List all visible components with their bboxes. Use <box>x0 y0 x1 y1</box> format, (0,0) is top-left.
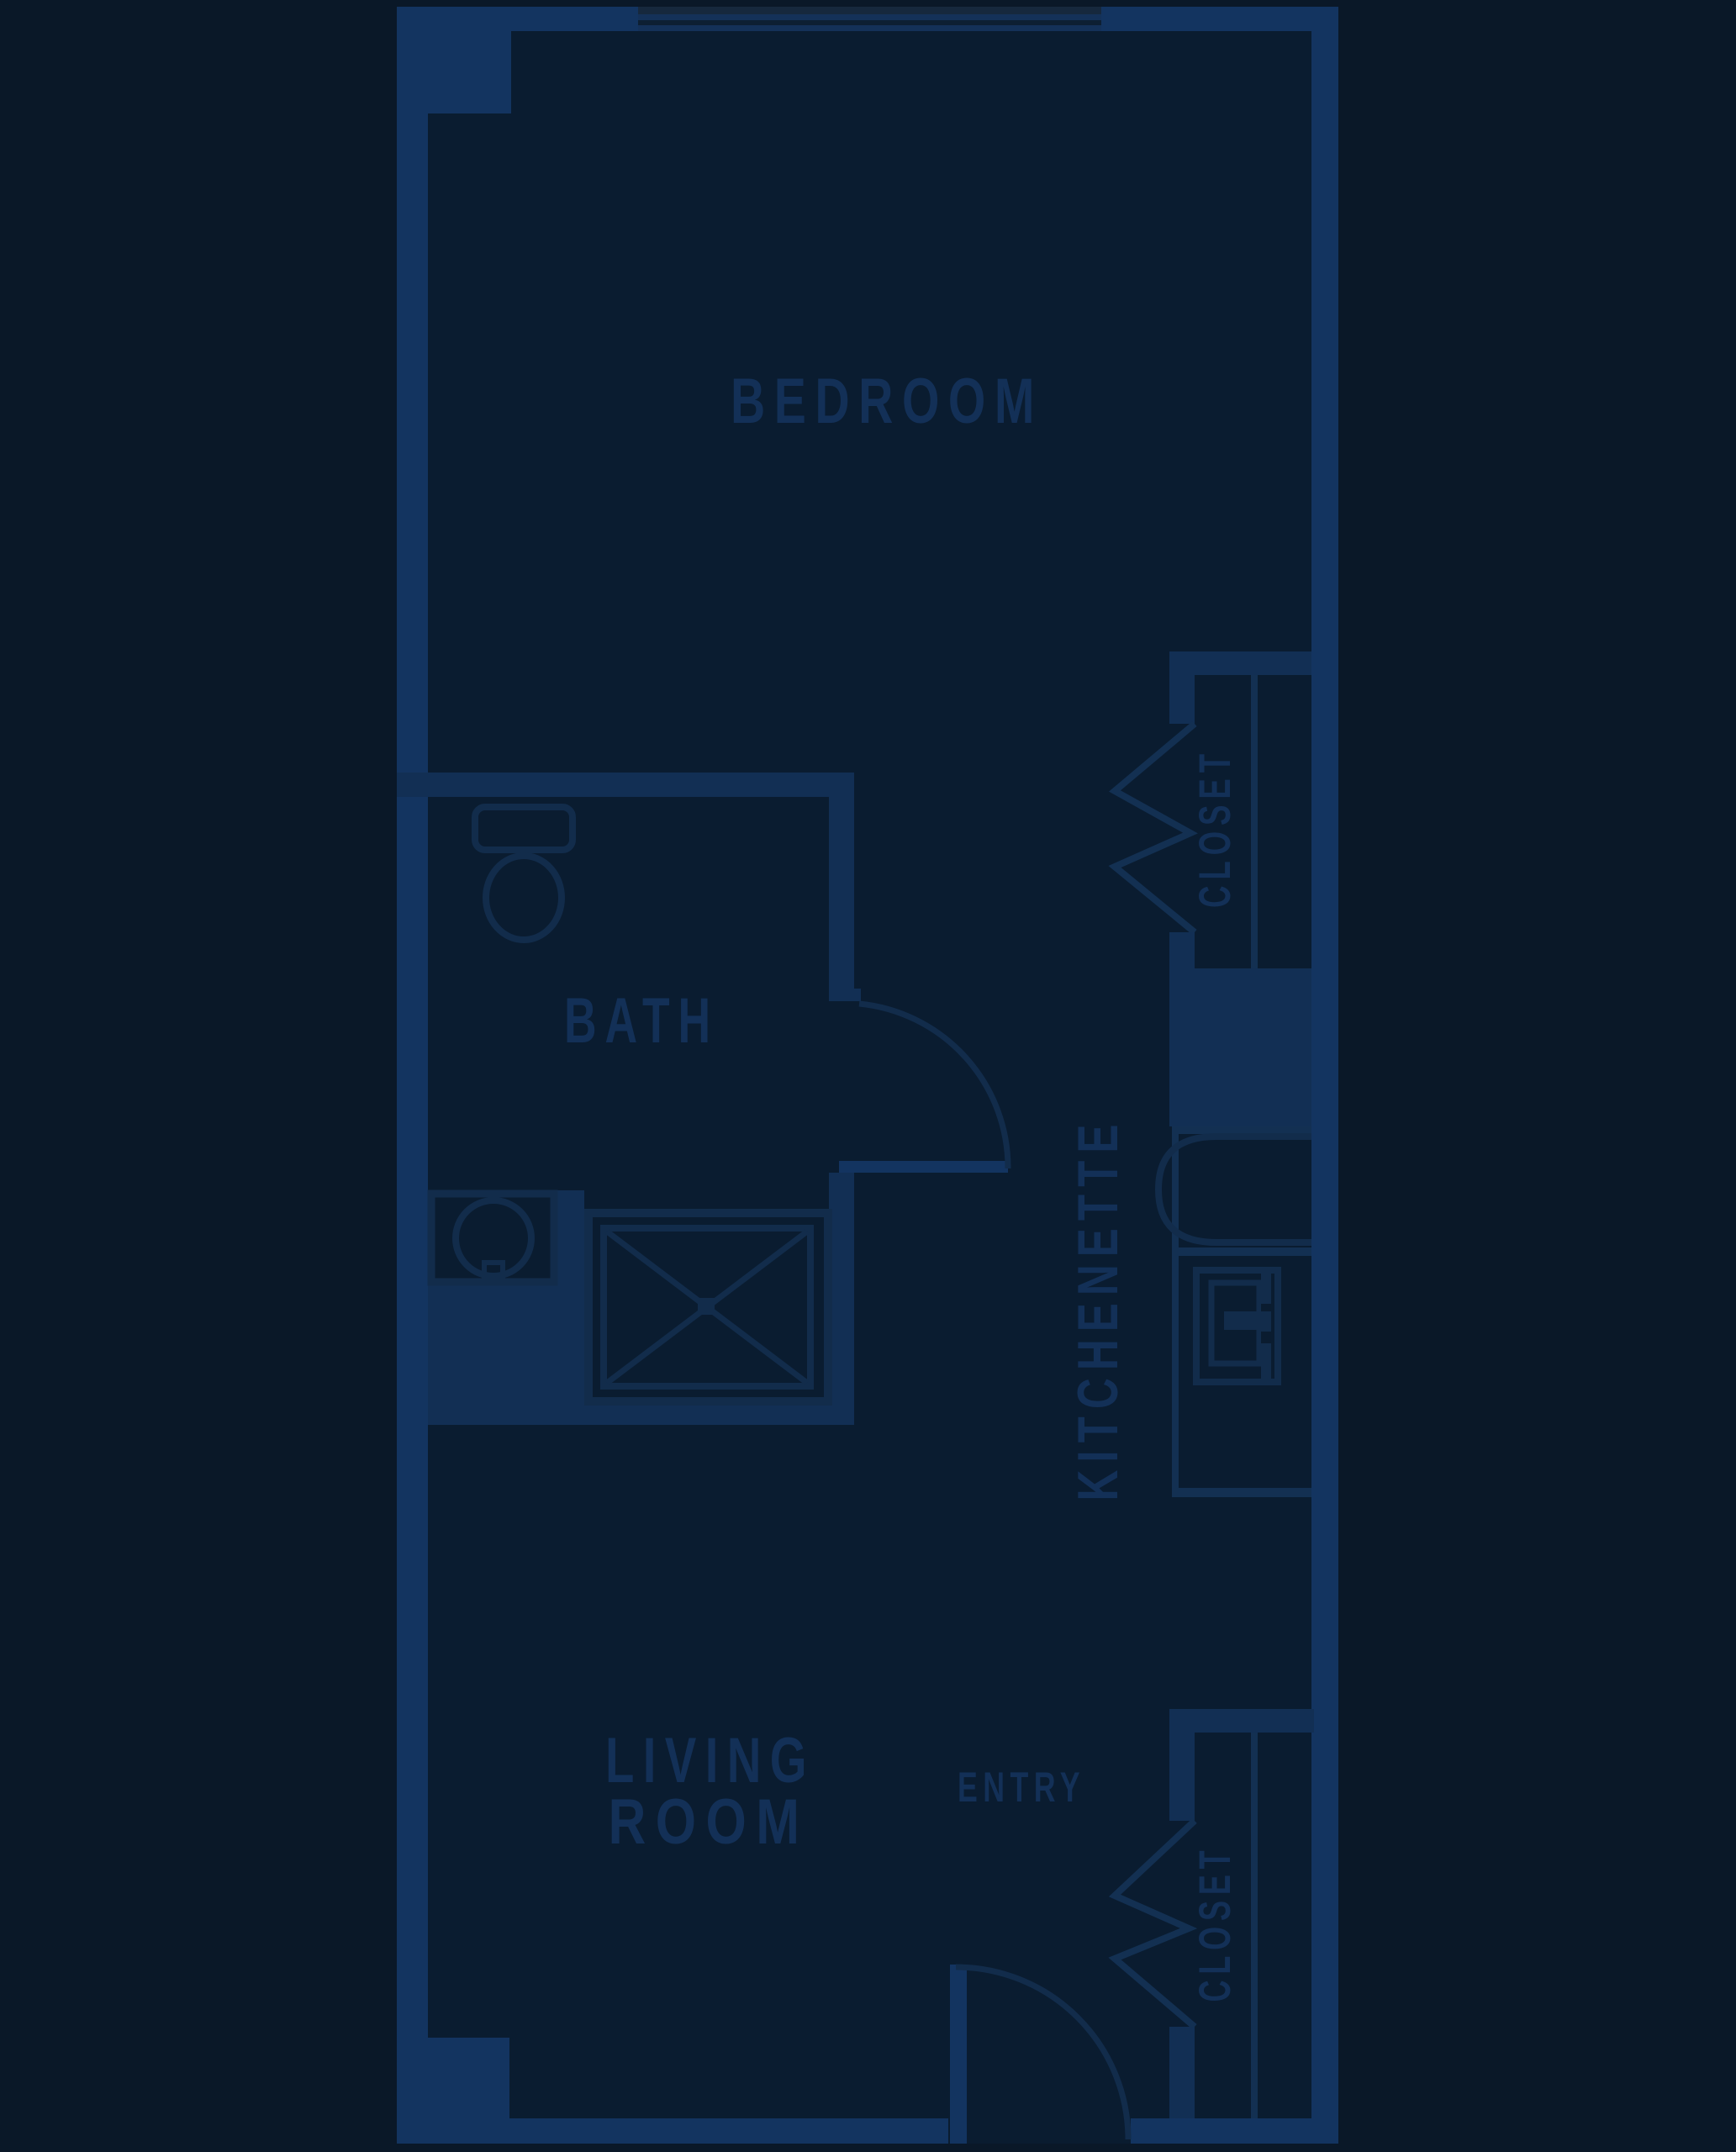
svg-text:ROOM: ROOM <box>609 1786 810 1858</box>
svg-text:BEDROOM: BEDROOM <box>731 366 1043 437</box>
svg-text:CLOSET: CLOSET <box>1190 748 1240 908</box>
svg-text:ENTRY: ENTRY <box>958 1764 1085 1811</box>
svg-text:CLOSET: CLOSET <box>1190 1845 1240 2002</box>
svg-text:BATH: BATH <box>564 985 719 1057</box>
